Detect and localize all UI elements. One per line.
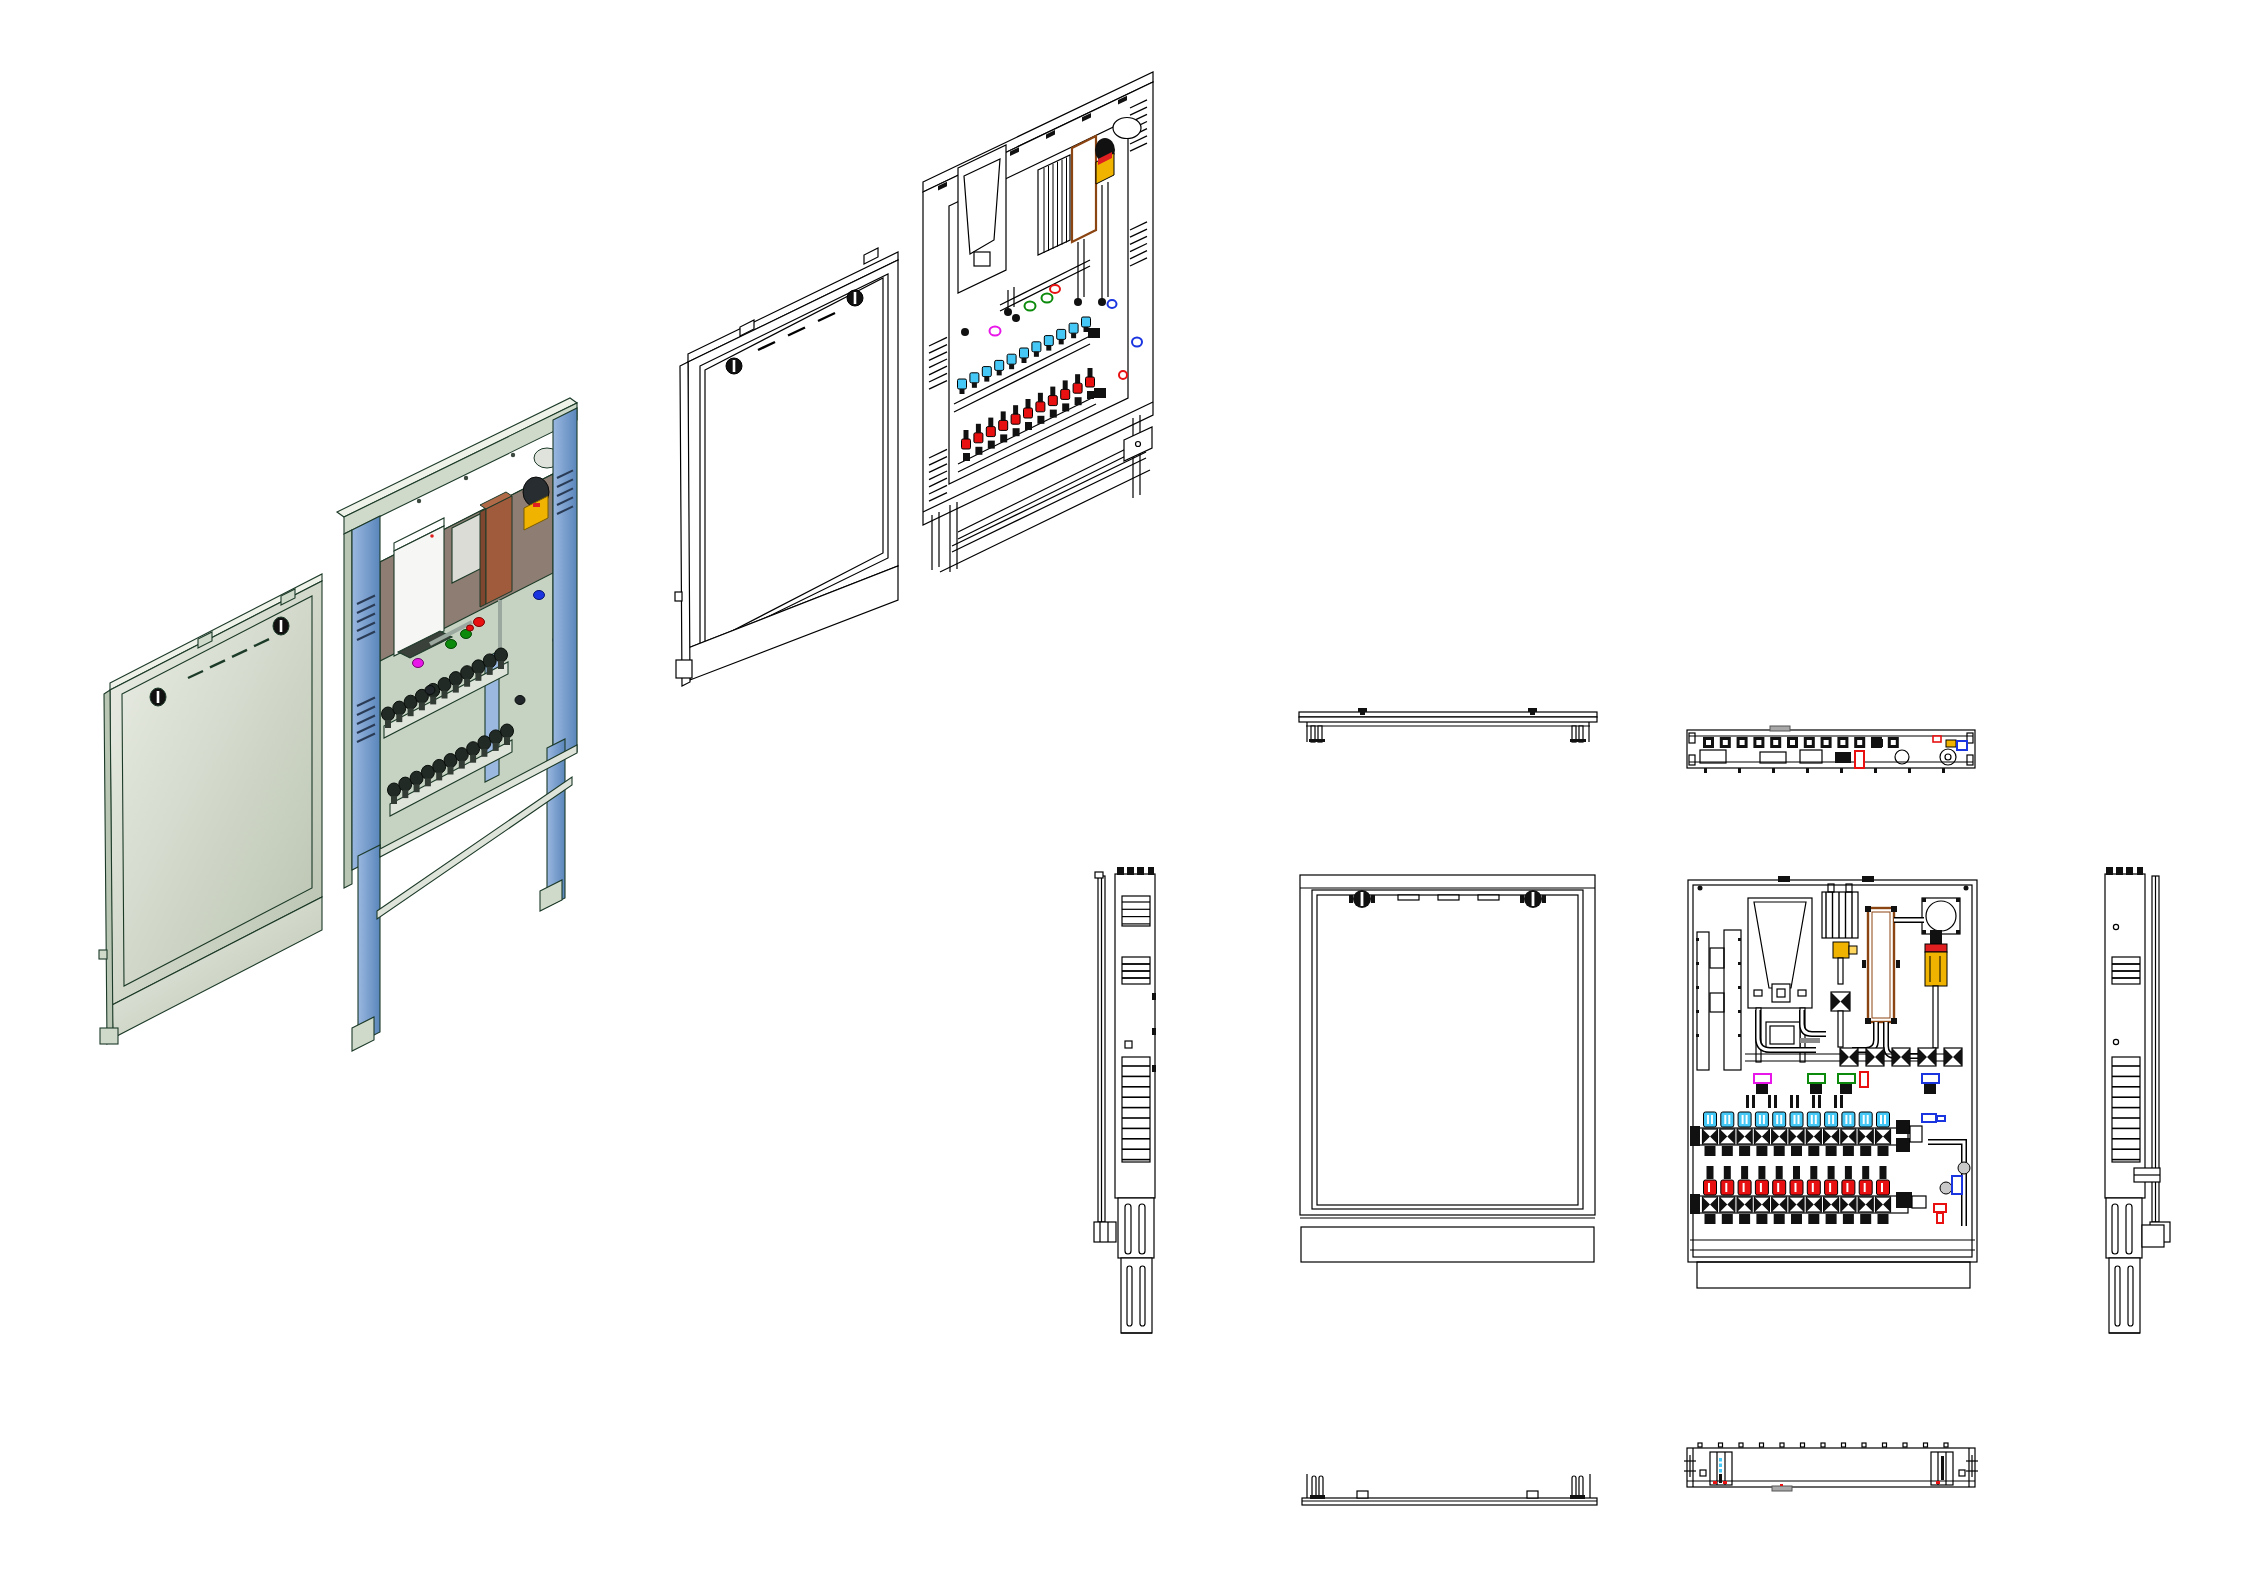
clip: [1527, 1491, 1538, 1498]
mounting-tab: [1770, 726, 1790, 731]
bottom-bracket-left: [1307, 1474, 1325, 1499]
ortho-side-left: [1094, 867, 1156, 1333]
hinge-mark: [1778, 876, 1790, 882]
boiler-unit: [958, 145, 1006, 293]
yellow-valve-tab: [1849, 946, 1857, 954]
iso-door-lineart: [675, 248, 898, 686]
boiler-unit: [1748, 898, 1812, 1008]
iso-cabinet-rendered: [337, 398, 577, 1051]
top-ticks: [1698, 1443, 1948, 1447]
legs: [1118, 1198, 1154, 1333]
ortho-bottom-cabinet: [1684, 1443, 1978, 1491]
manifold-supply-loops: [1703, 1112, 1891, 1156]
small-red-component: [1933, 736, 1941, 742]
left-blue-stile: [352, 516, 380, 870]
clip: [1357, 1491, 1368, 1498]
top-bracket-left: [1307, 722, 1325, 742]
vent-slots: [1398, 895, 1499, 900]
iso-door-rendered: [99, 574, 322, 1044]
heat-exchanger: [480, 492, 512, 607]
left-foot: [352, 1017, 374, 1051]
bottom-ticks: [1704, 768, 1945, 773]
drain-valve: [1937, 1213, 1943, 1223]
drawing-canvas: [0, 0, 2268, 1583]
expansion-vessel: [1113, 118, 1141, 139]
bottom-bracket-right: [1570, 1474, 1590, 1499]
cad-drawing-sheet: [0, 0, 2268, 1583]
door-edge-strip: [1094, 872, 1116, 1242]
door-lock: [847, 290, 863, 306]
ortho-top-door: [1299, 708, 1597, 742]
heat-exchanger: [1862, 906, 1900, 1024]
blue-component: [1957, 741, 1967, 750]
door-lock: [273, 617, 289, 635]
ortho-top-cabinet: [1687, 726, 1975, 773]
drain-valve: [1934, 1204, 1946, 1212]
valve-cross-row: [1840, 1048, 1962, 1066]
base-panel: [1697, 1262, 1970, 1288]
screw: [1698, 886, 1703, 891]
screw: [1964, 886, 1969, 891]
door-foot-bracket: [100, 1028, 118, 1044]
red-component: [1855, 751, 1864, 768]
leg-bracket: [2142, 1225, 2164, 1247]
right-blue-stile: [553, 408, 577, 764]
top-bracket-right: [1570, 722, 1589, 742]
hinge-mark: [1862, 876, 1874, 882]
door-lock: [150, 688, 166, 706]
door-edge-hook: [675, 592, 682, 601]
yellow-component: [1946, 740, 1956, 747]
finned-component: [1038, 155, 1070, 255]
ortho-front-door: [1300, 875, 1595, 1262]
gray-handle: [1800, 1038, 1820, 1043]
door-lock: [726, 358, 742, 374]
skirt-panel: [1301, 1227, 1594, 1262]
iso-cabinet-lineart: [923, 72, 1153, 572]
manifold-end-left: [1690, 1194, 1700, 1214]
ortho-side-right: [2105, 867, 2170, 1333]
ortho-front-cabinet: [1688, 876, 1977, 1288]
ortho-bottom-door: [1302, 1474, 1597, 1505]
heat-exchanger: [1072, 136, 1096, 242]
door-foot-bracket: [676, 660, 692, 678]
left-leg: [358, 845, 380, 1043]
yellow-valve: [1833, 942, 1849, 958]
manifold-return-loops: [1703, 1166, 1891, 1224]
door-edge-strip: [2150, 876, 2170, 1242]
manifold-end-left: [1690, 1126, 1700, 1146]
door-edge-hook: [99, 950, 107, 959]
